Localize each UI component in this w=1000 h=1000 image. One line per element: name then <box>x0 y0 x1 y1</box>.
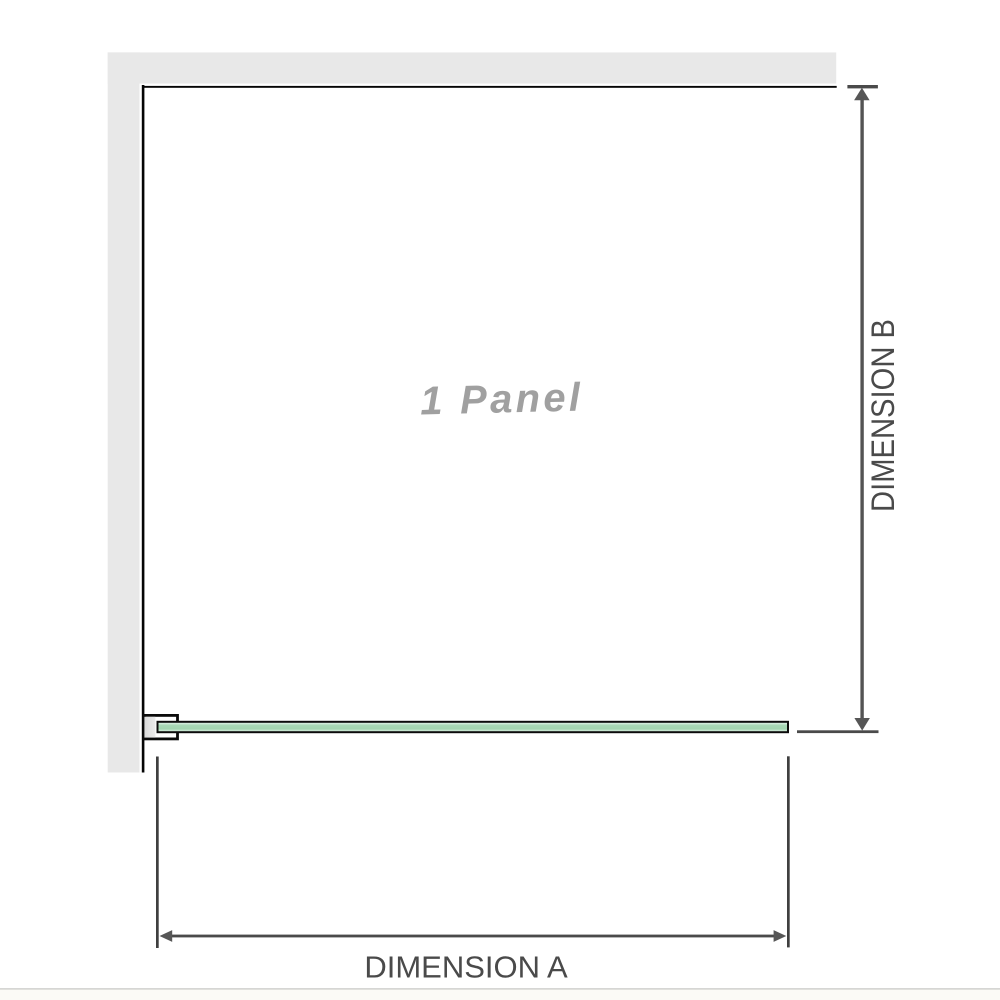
svg-text:1 Panel: 1 Panel <box>420 376 584 424</box>
svg-text:DIMENSION B: DIMENSION B <box>865 319 901 512</box>
svg-text:DIMENSION A: DIMENSION A <box>364 950 568 985</box>
